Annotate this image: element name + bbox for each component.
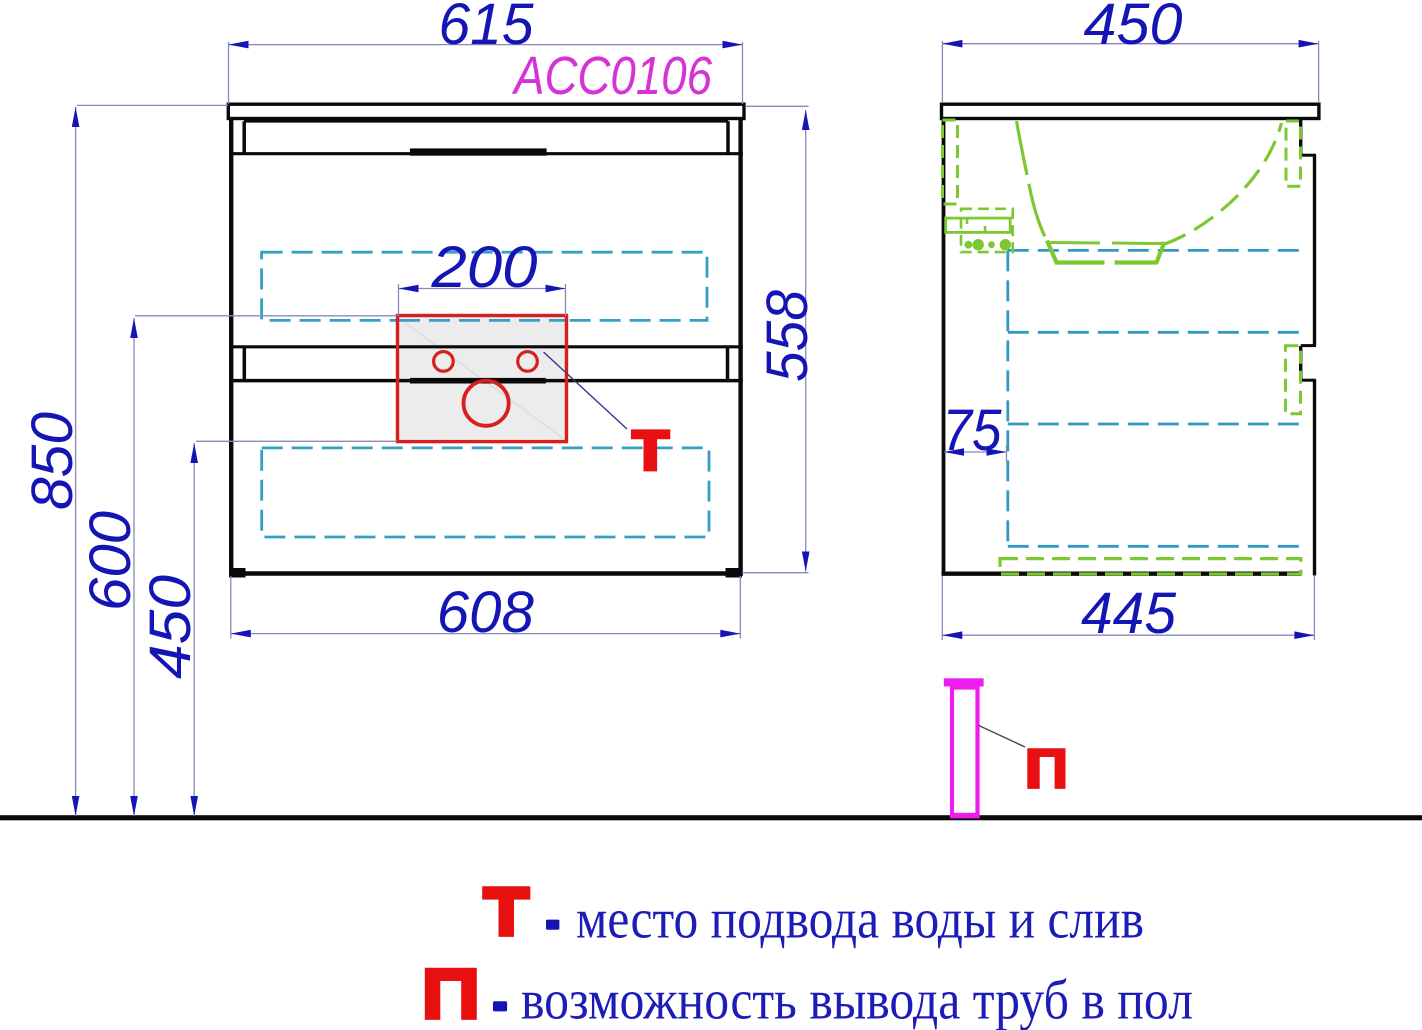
svg-text:450: 450 bbox=[1084, 0, 1183, 57]
svg-text:место подвода воды и слив: место подвода воды и слив bbox=[576, 889, 1144, 951]
svg-text:445: 445 bbox=[1081, 581, 1177, 646]
svg-text:558: 558 bbox=[755, 290, 820, 382]
svg-text:600: 600 bbox=[78, 511, 143, 611]
svg-text:200: 200 bbox=[430, 235, 537, 300]
svg-text:450: 450 bbox=[138, 575, 203, 679]
svg-text:850: 850 bbox=[20, 412, 85, 510]
svg-text:608: 608 bbox=[437, 580, 534, 645]
svg-text:ACC0106: ACC0106 bbox=[511, 46, 712, 106]
svg-text:возможность вывода труб в пол: возможность вывода труб в пол bbox=[521, 970, 1193, 1030]
svg-text:75: 75 bbox=[943, 398, 1003, 463]
